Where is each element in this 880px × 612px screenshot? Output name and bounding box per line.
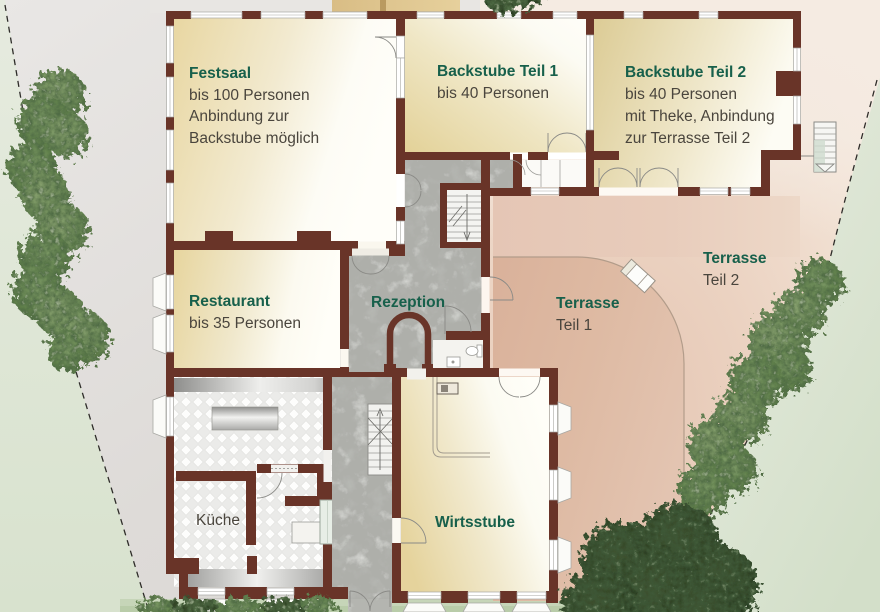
svg-text:Terrasse: Terrasse: [703, 250, 767, 267]
svg-text:Teil 1: Teil 1: [556, 317, 592, 334]
svg-text:mit Theke, Anbindung: mit Theke, Anbindung: [625, 108, 775, 125]
svg-text:Wirtsstube: Wirtsstube: [435, 514, 515, 531]
svg-text:Rezeption: Rezeption: [371, 294, 445, 311]
svg-text:Anbindung zur: Anbindung zur: [189, 108, 289, 125]
svg-text:bis 100 Personen: bis 100 Personen: [189, 87, 310, 104]
svg-text:Backstube Teil 1: Backstube Teil 1: [437, 63, 559, 80]
svg-text:bis 40 Personen: bis 40 Personen: [625, 86, 737, 103]
svg-text:zur Terrasse Teil 2: zur Terrasse Teil 2: [625, 130, 750, 147]
svg-text:Terrasse: Terrasse: [556, 295, 620, 312]
svg-text:Küche: Küche: [196, 512, 240, 529]
svg-text:Restaurant: Restaurant: [189, 293, 270, 310]
svg-text:Backstube Teil 2: Backstube Teil 2: [625, 64, 746, 81]
svg-text:Teil 2: Teil 2: [703, 272, 739, 289]
svg-text:Festsaal: Festsaal: [189, 65, 251, 82]
svg-text:bis 40 Personen: bis 40 Personen: [437, 85, 549, 102]
svg-text:bis 35 Personen: bis 35 Personen: [189, 315, 301, 332]
svg-text:Backstube möglich: Backstube möglich: [189, 130, 319, 147]
